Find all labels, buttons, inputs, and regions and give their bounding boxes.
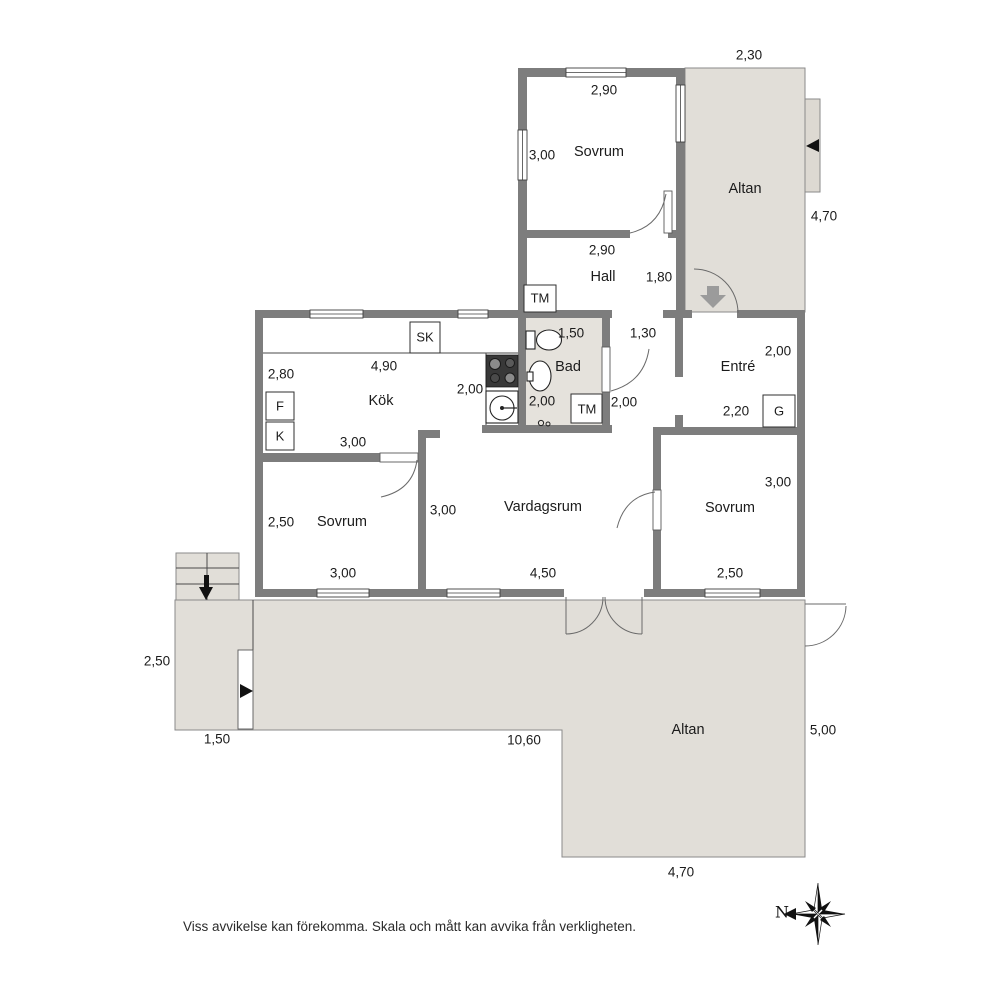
dim-altan-strip-width: 10,60 bbox=[507, 733, 541, 748]
dim-passage-width: 1,30 bbox=[630, 326, 656, 341]
dim-altan-top-width: 2,30 bbox=[736, 48, 762, 63]
room-label-sovrum-left: Sovrum bbox=[317, 514, 367, 530]
label-k-appliance: K bbox=[276, 429, 285, 444]
dim-kok-counter: 2,00 bbox=[457, 382, 483, 397]
dim-altan-left-width: 1,50 bbox=[204, 732, 230, 747]
dim-vardagsrum-depth: 3,00 bbox=[430, 503, 456, 518]
dim-altan-left-depth: 2,50 bbox=[144, 654, 170, 669]
dim-bad-depth: 2,00 bbox=[529, 394, 555, 409]
dim-kok-width: 4,90 bbox=[371, 359, 397, 374]
label-tm-bad: TM bbox=[578, 402, 597, 417]
dim-sovrum-right-depth: 3,00 bbox=[765, 475, 791, 490]
dim-entre-depth: 2,00 bbox=[765, 344, 791, 359]
dim-hall-width: 2,90 bbox=[589, 243, 615, 258]
label-g-closet: G bbox=[774, 404, 784, 419]
dim-passage-depth: 2,00 bbox=[611, 395, 637, 410]
compass-north-label: N bbox=[775, 903, 789, 922]
label-tm-hall: TM bbox=[531, 291, 550, 306]
dim-hall-depth: 1,80 bbox=[646, 270, 672, 285]
dim-sovrum-left-width: 3,00 bbox=[330, 566, 356, 581]
dim-kok-depth: 2,80 bbox=[268, 367, 294, 382]
dim-sovrum-right-width: 2,50 bbox=[717, 566, 743, 581]
room-label-bad: Bad bbox=[555, 359, 581, 375]
room-label-sovrum-top: Sovrum bbox=[574, 144, 624, 160]
room-label-vardagsrum: Vardagsrum bbox=[504, 499, 582, 515]
room-label-kok: Kök bbox=[369, 393, 394, 409]
floor-plan: SovrumAltanHallBadEntréKökSovrumVardagsr… bbox=[0, 0, 992, 992]
room-label-entre: Entré bbox=[721, 359, 756, 375]
room-label-altan-top: Altan bbox=[728, 181, 761, 197]
room-label-sovrum-right: Sovrum bbox=[705, 500, 755, 516]
dim-kok-lower-width: 3,00 bbox=[340, 435, 366, 450]
labels-layer: SovrumAltanHallBadEntréKökSovrumVardagsr… bbox=[0, 0, 992, 992]
dim-bad-width: 1,50 bbox=[558, 326, 584, 341]
label-sk-closet: SK bbox=[416, 330, 433, 345]
dim-entre-width: 2,20 bbox=[723, 404, 749, 419]
dim-altan-top-depth: 4,70 bbox=[811, 209, 837, 224]
label-f-appliance: F bbox=[276, 399, 284, 414]
dim-sovrum-top-depth: 3,00 bbox=[529, 148, 555, 163]
room-label-altan-bottom: Altan bbox=[671, 722, 704, 738]
dim-sovrum-top-width: 2,90 bbox=[591, 83, 617, 98]
dim-sovrum-left-depth: 2,50 bbox=[268, 515, 294, 530]
dim-altan-bottom-depth: 5,00 bbox=[810, 723, 836, 738]
dim-altan-bottom-width: 4,70 bbox=[668, 865, 694, 880]
disclaimer-text: Viss avvikelse kan förekomma. Skala och … bbox=[183, 919, 636, 934]
dim-vardagsrum-width: 4,50 bbox=[530, 566, 556, 581]
room-label-hall: Hall bbox=[591, 269, 616, 285]
